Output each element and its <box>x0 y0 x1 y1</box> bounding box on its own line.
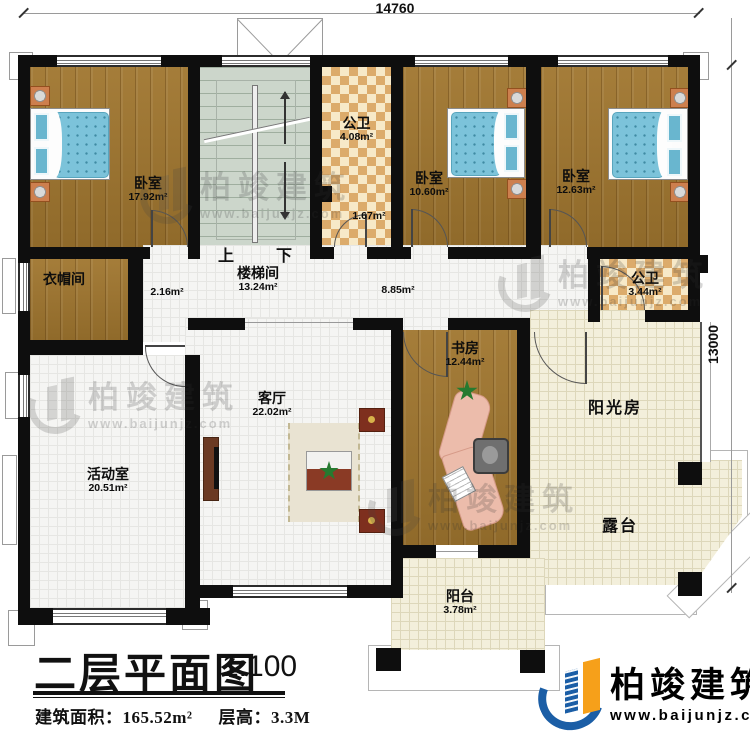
wall-bedroom2-bedroom3 <box>526 67 541 259</box>
room-name: 公卫 <box>322 115 391 131</box>
room-area: 20.51m² <box>65 482 151 494</box>
chair-seat <box>482 446 498 464</box>
stair-up-label: 上 <box>218 242 234 266</box>
brand-website: www.baijunjz.com <box>610 707 750 724</box>
room-name: 客厅 <box>237 390 307 406</box>
wall-segment <box>587 247 688 259</box>
room-label-bedroom1: 卧室 17.92m² <box>100 175 196 203</box>
room-area: 2.16m² <box>144 286 190 298</box>
tv <box>214 447 219 489</box>
room-area: 13.24m² <box>213 281 303 293</box>
room-area: 3.78m² <box>432 604 488 616</box>
floor-height-label: 层高：3.3M <box>219 708 311 727</box>
bed-pillow <box>504 145 519 172</box>
room-area: 12.44m² <box>430 356 500 368</box>
room-label-living: 客厅 22.02m² <box>237 390 307 418</box>
bed-sheet <box>47 110 62 178</box>
bed-mattress <box>54 112 109 178</box>
door-leaf <box>585 332 587 384</box>
nightstand <box>507 179 527 199</box>
coffee-table <box>306 451 352 491</box>
wall-segment <box>448 247 541 259</box>
stair-arrow-up <box>284 92 286 144</box>
table-lamp <box>368 416 375 423</box>
bath1-divider <box>322 186 332 202</box>
brand-logo-icon <box>538 660 602 732</box>
title-underline-thin <box>33 697 285 698</box>
passage-line <box>245 322 353 323</box>
room-label-balcony: 阳台 3.78m² <box>432 588 488 616</box>
brand-name: 柏竣建筑 <box>610 668 750 703</box>
floor-plan-canvas: 14760 13000 <box>0 0 750 736</box>
pillar <box>678 572 702 596</box>
room-name: 衣帽间 <box>28 271 100 287</box>
wall-segment <box>367 247 411 259</box>
wall-segment <box>448 318 530 330</box>
stair-arrow-up-head <box>280 86 290 99</box>
wall-segment <box>30 247 150 259</box>
side-table <box>359 408 385 432</box>
window <box>558 55 668 67</box>
logo-tower-blue <box>565 668 578 713</box>
window <box>53 608 166 625</box>
room-label-bedroom2: 卧室 10.60m² <box>397 170 461 198</box>
stair-rail <box>252 85 258 243</box>
door-leaf <box>549 209 551 247</box>
room-name: 活动室 <box>65 466 151 482</box>
room-label-hallway: 8.85m² <box>372 284 424 296</box>
wall-stair-bath1 <box>310 67 322 259</box>
room-area: 1.67m² <box>346 210 392 222</box>
pillar <box>690 255 708 273</box>
wall-segment <box>391 545 436 558</box>
door-leaf <box>411 209 413 247</box>
room-label-bath2: 公卫 3.44m² <box>613 270 677 298</box>
bed <box>30 86 110 204</box>
room-label-activity: 活动室 20.51m² <box>65 466 151 494</box>
room-name: 卧室 <box>544 168 608 184</box>
room-area: 12.63m² <box>544 184 608 196</box>
passage-line <box>436 551 478 552</box>
door-leaf <box>601 266 603 310</box>
right-dimension-label: 13000 <box>705 325 721 364</box>
room-area: 17.92m² <box>100 191 196 203</box>
bed-pillow <box>34 113 49 141</box>
bed-pillow <box>667 114 682 142</box>
wall-cloakroom-bottom <box>18 340 143 355</box>
room-label-bath1b: 1.67m² <box>346 210 392 222</box>
room-area: 8.85m² <box>372 284 424 296</box>
room-name: 阳光房 <box>572 400 658 418</box>
room-label-bedroom3: 卧室 12.63m² <box>544 168 608 196</box>
right-dimension-line <box>731 18 732 593</box>
window <box>57 55 161 67</box>
wall-segment <box>322 247 334 259</box>
room-area: 4.08m² <box>322 131 391 143</box>
room-area: 10.60m² <box>397 186 461 198</box>
wall-segment <box>478 545 530 558</box>
room-name: 楼梯间 <box>213 265 303 281</box>
wall-bedroom1-stair <box>188 67 200 259</box>
room-label-stairwell: 楼梯间 13.24m² <box>213 265 303 293</box>
logo-tower-orange <box>583 658 600 714</box>
wall-bath1-bedroom2 <box>391 67 403 259</box>
door-leaf <box>151 210 153 247</box>
bed-pillow <box>504 113 519 140</box>
window <box>233 585 347 598</box>
wall-segment <box>188 318 245 330</box>
room-label-study: 书房 12.44m² <box>430 340 500 368</box>
pillar <box>678 462 702 485</box>
ac-platform <box>2 455 17 545</box>
wall-study-right <box>517 330 530 545</box>
window <box>222 55 310 67</box>
top-dimension-label: 14760 <box>355 0 435 16</box>
room-name: 书房 <box>430 340 500 356</box>
room-name: 露台 <box>592 518 648 536</box>
room-area: 3.44m² <box>613 286 677 298</box>
room-label-bath1: 公卫 4.08m² <box>322 115 391 143</box>
nightstand <box>507 88 527 108</box>
room-label-corridor: 2.16m² <box>144 286 190 298</box>
table-lamp <box>368 517 375 524</box>
plant <box>319 461 339 481</box>
wall-segment <box>588 310 600 322</box>
nightstand <box>670 182 690 202</box>
title-underline <box>33 691 285 695</box>
bed <box>608 88 690 202</box>
nightstand <box>30 86 50 106</box>
stair-down-label: 下 <box>276 242 292 266</box>
built-area-label: 建筑面积：165.52m² <box>35 708 193 727</box>
room-label-sunroom: 阳光房 <box>572 400 658 418</box>
door-leaf <box>145 345 185 347</box>
nightstand <box>30 182 50 202</box>
room-name: 公卫 <box>613 270 677 286</box>
room-label-cloakroom: 衣帽间 <box>28 271 100 287</box>
office-chair <box>473 438 509 474</box>
stair-arrow-down <box>284 162 286 214</box>
room-label-terrace: 露台 <box>592 518 648 536</box>
window <box>18 375 30 417</box>
window <box>415 55 508 67</box>
brand-logo: 柏竣建筑 www.baijunjz.com <box>538 660 750 732</box>
bed-pillow <box>667 148 682 176</box>
room-area: 22.02m² <box>237 406 307 418</box>
room-name: 阳台 <box>432 588 488 604</box>
side-table <box>359 509 385 533</box>
room-name: 卧室 <box>397 170 461 186</box>
wall-right <box>688 55 700 322</box>
wall-segment <box>645 310 700 322</box>
plan-info: 建筑面积：165.52m²层高：3.3M <box>35 703 336 728</box>
plan-scale: 1:100 <box>222 650 297 684</box>
bed-pillow <box>34 147 49 175</box>
stair-arrow-down-head <box>280 212 290 225</box>
pillar <box>376 648 401 671</box>
wall-activity-living <box>185 355 200 608</box>
window-sill <box>2 258 16 314</box>
room-name: 卧室 <box>100 175 196 191</box>
nightstand <box>670 88 690 108</box>
